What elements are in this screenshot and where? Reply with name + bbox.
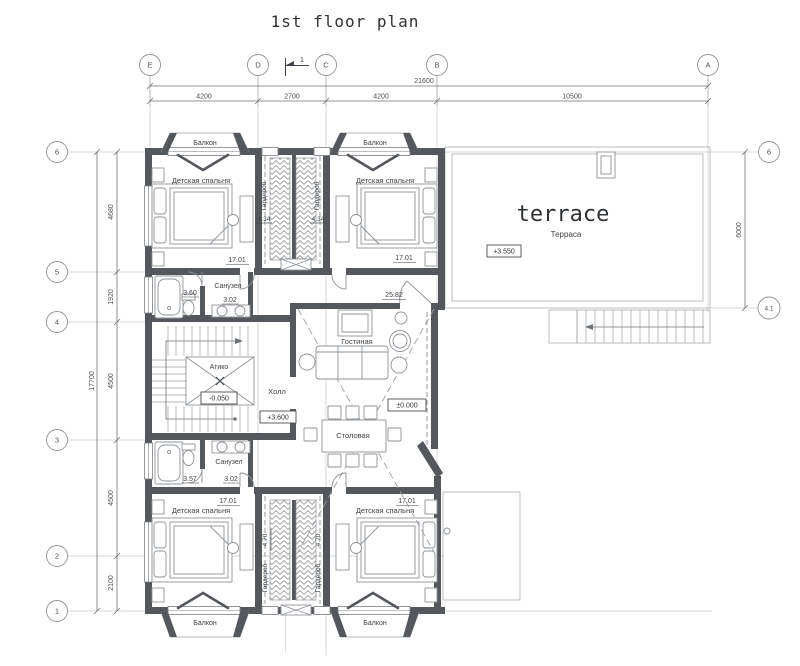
- area-bedroom-tl: 17.01: [228, 257, 246, 264]
- bedroom-top-right: Детская спальня 17.01: [336, 168, 437, 266]
- terrace-label-ru: Терраса: [551, 230, 582, 239]
- axis-bubble-d: D: [255, 61, 261, 70]
- plan-title: 1st floor plan: [271, 12, 420, 31]
- bathroom-top-label: Санузел: [214, 283, 241, 290]
- wardrobe-tr-label: Гардероб: [313, 181, 321, 210]
- hall-label: Холл: [268, 387, 286, 396]
- area-living: 25.82: [385, 292, 403, 299]
- section-mark: 1: [286, 57, 310, 76]
- area-bedroom-bl: 17.01: [219, 498, 237, 505]
- area-bath-top-tub: 3.60: [183, 290, 197, 297]
- dim-2-1: 2100: [108, 575, 115, 591]
- dim-e-d: 4200: [196, 94, 212, 101]
- balcony-tr-label: Балкон: [363, 140, 387, 147]
- area-bedroom-tr: 17.01: [395, 255, 413, 262]
- dining-label: Столовая: [336, 431, 370, 440]
- dim-5-4: 1920: [108, 289, 115, 305]
- axis-bubble-e: E: [147, 61, 152, 70]
- bedroom-top-left: Детская спальня 17.01: [152, 168, 253, 266]
- elevation-living: ±0.000: [396, 403, 417, 410]
- area-bath-bottom-wc: 3.02: [224, 476, 238, 483]
- wardrobe-bl-label: Гардероб: [261, 563, 269, 592]
- axis-bubble-2: 2: [55, 552, 59, 561]
- door-knob-marker: [444, 528, 450, 534]
- dim-c-b: 4200: [373, 94, 389, 101]
- dim-b-a: 10500: [562, 94, 582, 101]
- axis-bubble-4: 4: [55, 318, 59, 327]
- dim-left-total: 17700: [89, 371, 96, 391]
- elevation-terrace: +3.550: [493, 249, 515, 256]
- balcony-bottom-left: Балкон: [161, 593, 249, 637]
- bedroom-tr-label: Детская спальня: [356, 176, 414, 185]
- terrace: terrace Терраса +3.550: [439, 147, 711, 343]
- section-label: 1: [300, 57, 304, 64]
- bedroom-bottom-left: Детская спальня 17.01: [152, 498, 253, 602]
- axis-bubble-6: 6: [55, 148, 59, 157]
- axis-bubble-c: C: [323, 61, 329, 70]
- area-wardrobe-tl: 4.34: [258, 216, 271, 223]
- dim-3-2: 4500: [108, 490, 115, 506]
- bedroom-br-label: Детская спальня: [356, 506, 414, 515]
- floor-plan-drawing: 21600 4200 2700 4200 10500 17700 4680 19…: [0, 0, 800, 666]
- staircase: Атико -0.050: [152, 326, 254, 432]
- axis-bubble-a: A: [705, 61, 710, 70]
- bedroom-tl-label: Детская спальня: [172, 176, 230, 185]
- area-wardrobe-bl: 4.70: [262, 533, 269, 546]
- floor-plan-page: 21600 4200 2700 4200 10500 17700 4680 19…: [0, 0, 800, 666]
- hall: Холл +3.600: [260, 387, 296, 423]
- dim-d-c: 2700: [284, 94, 300, 101]
- elevation-atrium: -0.050: [209, 396, 229, 403]
- living-label: Гостиная: [341, 337, 372, 346]
- axis-bubble-b: B: [434, 61, 439, 70]
- axis-bubble-right-41: 4.1: [764, 306, 773, 313]
- wardrobe-top: Гардероб 4.34 Гардероб 4.34: [256, 156, 326, 270]
- balcony-bl-label: Балкон: [193, 620, 217, 627]
- elevation-hall: +3.600: [267, 415, 289, 422]
- atrium-label: Атико: [210, 364, 229, 371]
- area-bath-top-wc: 3.02: [223, 297, 237, 304]
- balcony-br-label: Балкон: [363, 620, 387, 627]
- bathroom-bottom-label: Санузел: [215, 459, 242, 466]
- terrace-stairs: [549, 310, 710, 343]
- area-wardrobe-tr: 4.34: [312, 216, 325, 223]
- balcony-tl-label: Балкон: [193, 140, 217, 147]
- dim-right: 6000: [736, 222, 743, 238]
- axis-bubble-right-6: 6: [767, 148, 771, 157]
- dim-6-5: 4680: [108, 204, 115, 220]
- porch-outline: [443, 492, 520, 600]
- bedroom-bl-label: Детская спальня: [172, 506, 230, 515]
- area-bath-bottom-tub: 3.57: [183, 476, 197, 483]
- terrace-label-en: terrace: [517, 202, 610, 227]
- wardrobe-br-label: Гардероб: [314, 563, 322, 592]
- dim-4-3: 4500: [108, 373, 115, 389]
- area-wardrobe-br: 4.70: [315, 533, 322, 546]
- wardrobe-tl-label: Гардероб: [260, 181, 268, 210]
- dim-top-total: 21600: [414, 78, 434, 85]
- axis-bubble-5: 5: [55, 268, 59, 277]
- balcony-bottom-right: Балкон: [331, 593, 419, 637]
- axis-bubble-1: 1: [55, 607, 59, 616]
- axis-bubble-3: 3: [55, 436, 59, 445]
